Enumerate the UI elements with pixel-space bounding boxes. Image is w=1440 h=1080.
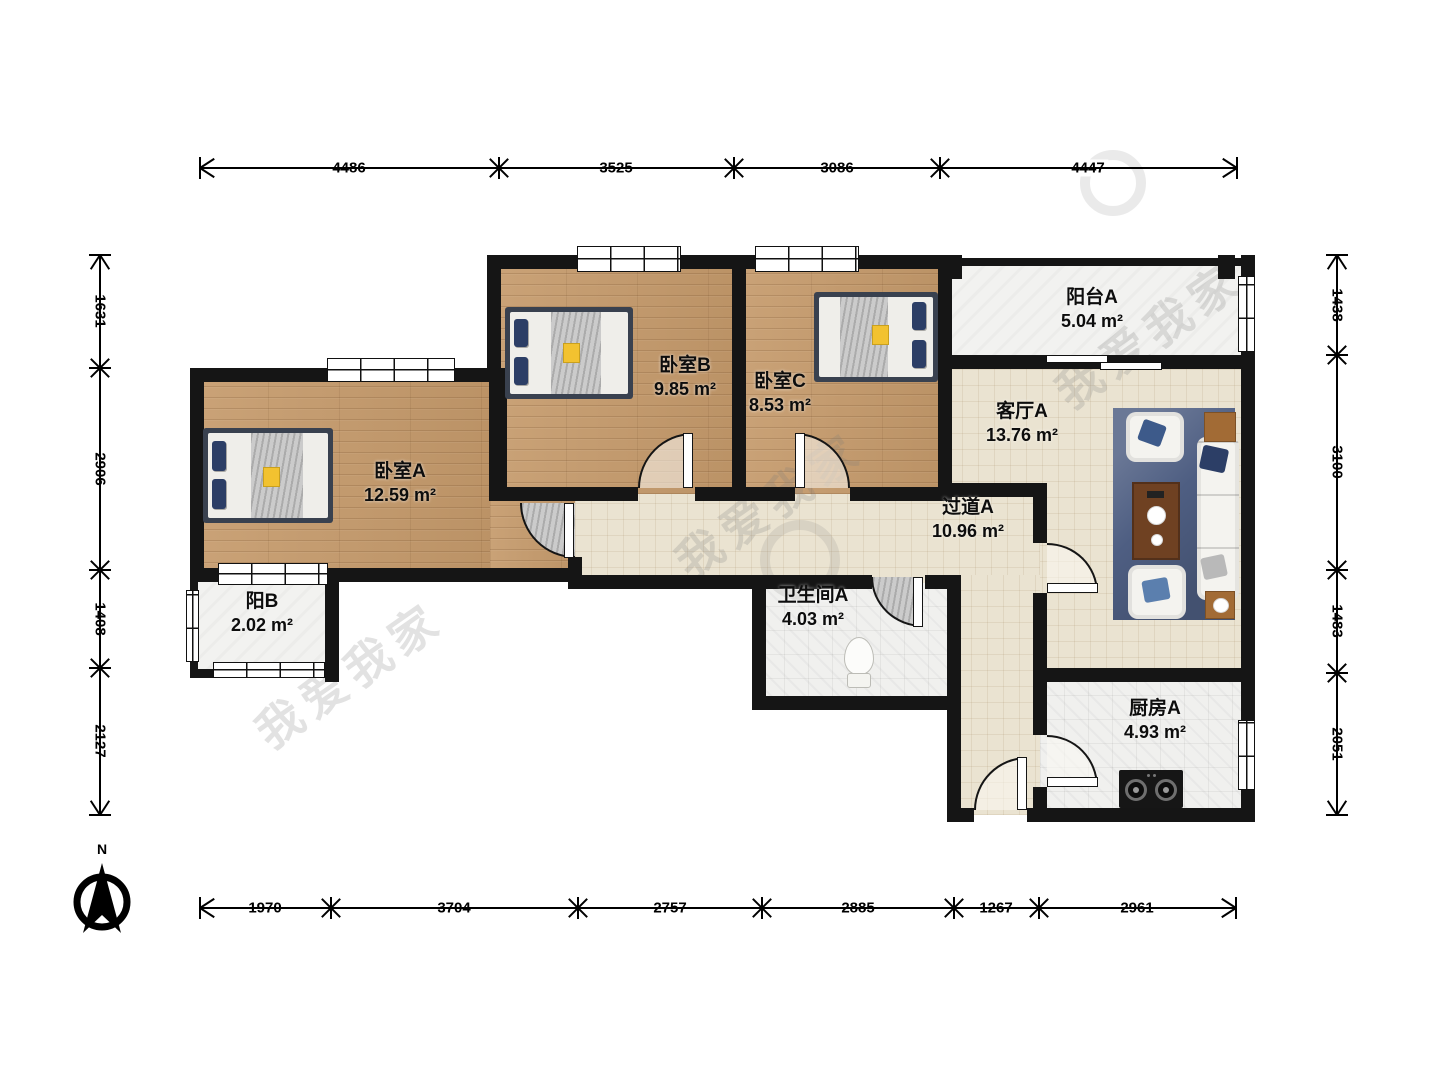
wall-segment (1033, 497, 1047, 543)
wall-segment (1047, 668, 1241, 682)
plate (1151, 534, 1163, 546)
armchair-pillow (1141, 577, 1170, 603)
window-balcony-a (1238, 276, 1255, 352)
dimension-mark (99, 255, 101, 815)
wall-segment (487, 255, 501, 382)
wall-segment (947, 808, 974, 822)
wall-segment (746, 487, 795, 501)
wall-segment (568, 557, 582, 582)
wall-segment (952, 258, 1241, 266)
bed-book (263, 467, 280, 487)
stove-burner (1155, 779, 1177, 801)
stove-knob (1153, 774, 1156, 777)
bed-pillow (514, 319, 528, 347)
wall-segment (489, 487, 638, 501)
wall-segment (325, 582, 339, 682)
wall-pillar (1218, 255, 1235, 279)
wall-segment (487, 255, 952, 269)
floorplan-canvas: 我爱我家 我爱我家 我爱我家 (0, 0, 1440, 1080)
wall-segment (568, 575, 872, 589)
room-balcony-a-floor (946, 262, 1246, 362)
wall-segment (1027, 808, 1255, 822)
door-bedroom-a-leaf (564, 503, 574, 558)
window-bedroom-a-balcony-b (218, 563, 328, 585)
wall-segment (1033, 593, 1047, 735)
stove-knob (1147, 774, 1150, 777)
sofa-pillow (1199, 445, 1229, 474)
dimension-mark (200, 167, 1237, 169)
bed-bedroom-b (505, 307, 633, 399)
wall-segment (752, 696, 961, 710)
door-bedroom-b-leaf (683, 433, 693, 488)
door-bathroom-leaf (913, 577, 923, 627)
door-bedroom-c-leaf (795, 433, 805, 488)
bed-bedroom-a (203, 428, 333, 523)
wall-segment (938, 255, 952, 501)
window-balcony-b-left (186, 590, 199, 662)
bed-pillow (212, 479, 226, 509)
room-hallway-floor (575, 494, 1040, 584)
bed-book (872, 325, 889, 345)
plate (1147, 506, 1166, 525)
window-kitchen (1238, 720, 1255, 790)
bed-pillow (212, 441, 226, 471)
wall-segment (850, 487, 952, 501)
wall-segment (695, 487, 732, 501)
dimension-mark (1336, 255, 1338, 815)
window-balcony-b-bottom (213, 662, 325, 678)
wall-segment (947, 575, 961, 822)
stove-burner (1125, 779, 1147, 801)
compass-north-label: N (97, 841, 107, 857)
bed-bedroom-c (814, 292, 938, 382)
window-bedroom-a (327, 358, 455, 382)
side-table (1204, 412, 1236, 442)
door-kitchen-leaf (1047, 777, 1098, 787)
remote (1147, 491, 1164, 498)
bed-pillow (912, 340, 926, 368)
window-bedroom-c (755, 246, 859, 272)
window-bedroom-b (577, 246, 681, 272)
bed-book (563, 343, 580, 363)
sliding-door-panel (1100, 362, 1162, 370)
side-table (1205, 591, 1235, 619)
flower-vase (1213, 598, 1229, 613)
room-balcony-b-floor (196, 580, 329, 675)
wall-segment (752, 575, 766, 710)
toilet (844, 637, 874, 689)
toilet-tank (847, 673, 871, 688)
sliding-door-panel (1046, 355, 1108, 363)
coffee-table (1132, 482, 1180, 560)
bed-pillow (514, 357, 528, 385)
wall-segment (732, 255, 746, 501)
door-living-room-leaf (1047, 583, 1098, 593)
compass-icon (70, 845, 134, 940)
bed-pillow (912, 302, 926, 330)
toilet-bowl (844, 637, 874, 675)
wall-segment (190, 368, 204, 582)
compass: N (70, 845, 134, 940)
stove (1119, 770, 1183, 808)
wall-segment (952, 483, 1047, 497)
door-entrance-leaf (1017, 757, 1027, 810)
dimension-mark (200, 907, 1236, 909)
